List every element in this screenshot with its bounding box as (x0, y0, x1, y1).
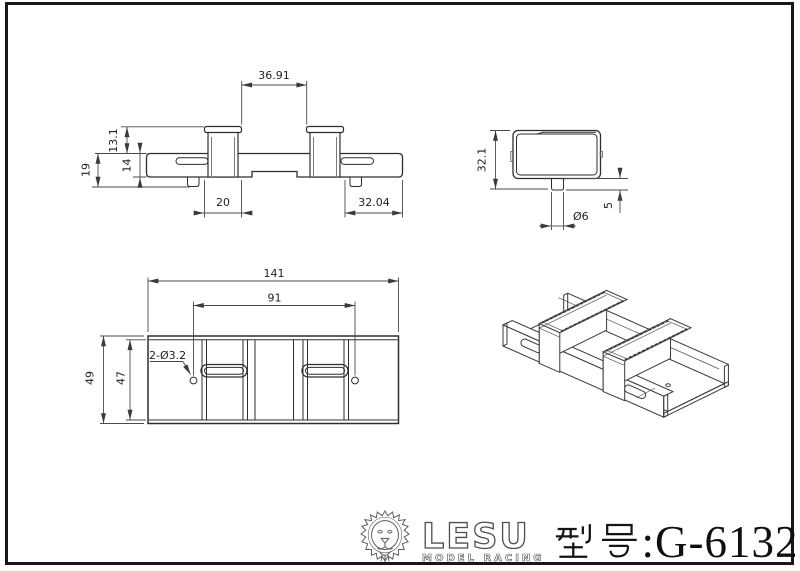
front-right-slot (341, 158, 374, 165)
side-extension-lines (490, 131, 628, 231)
front-left-block (208, 132, 238, 178)
dim-text-right-span: 32.04 (358, 196, 390, 209)
side-right-notch (600, 152, 602, 158)
dim-text-total-length: 141 (264, 267, 285, 280)
dim-text-rail-height: 14 (121, 159, 134, 173)
isometric-view (503, 290, 728, 417)
drawing-sheet: 36.91 13.1 14 19 20 32.04 32.1 5 (0, 0, 800, 571)
side-outline (513, 131, 601, 179)
top-right-slot-outer (302, 365, 348, 378)
top-left-hole (190, 377, 197, 384)
cad-drawing: 36.91 13.1 14 19 20 32.04 32.1 5 (0, 0, 800, 571)
dim-text-total-height: 19 (80, 163, 93, 177)
side-inner-outline (517, 134, 598, 175)
brand-wordmark: LESU (422, 522, 530, 552)
dim-text-block-height: 13.1 (107, 128, 120, 153)
front-rail-outline (147, 154, 403, 178)
holes-leader (183, 362, 191, 375)
front-left-slot (176, 158, 208, 165)
top-wall-lines (149, 340, 398, 420)
title-block: LESU MODEL RACING :G-6132 (360, 506, 799, 564)
iso-far-wall-right-end (724, 364, 728, 387)
side-left-notch (511, 152, 514, 162)
dim-text-inner-width: 47 (115, 371, 128, 385)
front-left-block-cap (205, 127, 242, 133)
top-left-slot-inner (205, 367, 244, 374)
side-bottom-tab (552, 179, 564, 191)
front-right-block-cap (307, 127, 344, 133)
model-number-row: :G-6132 (555, 520, 799, 564)
dim-text-tab-length: 5 (602, 202, 615, 209)
front-view: 36.91 13.1 14 19 20 32.04 (80, 69, 403, 218)
top-extension-lines (100, 278, 399, 424)
dim-text-top-span: 36.91 (258, 69, 290, 82)
dim-text-holes: 2-Ø3.2 (149, 349, 186, 362)
top-right-hole (352, 377, 359, 384)
top-right-slot-inner (306, 367, 345, 374)
dim-text-hole-span: 91 (268, 292, 282, 305)
top-view: 141 91 2-Ø3.2 49 47 (84, 267, 399, 424)
dim-text-outer-width: 49 (84, 371, 97, 385)
lion-head-icon (360, 508, 410, 564)
front-left-foot (188, 177, 200, 187)
front-extension-lines (92, 81, 403, 218)
brand-box: LESU MODEL RACING (422, 522, 545, 564)
top-band-lines (202, 340, 349, 420)
top-left-slot-outer (201, 365, 247, 378)
dim-text-side-height: 32.1 (476, 148, 489, 173)
front-right-foot (350, 177, 362, 187)
model-number: :G-6132 (642, 520, 799, 564)
front-right-block (310, 132, 340, 178)
dim-text-block-width: 20 (216, 196, 230, 209)
model-label-cn (555, 522, 642, 562)
dim-text-tab-diameter: Ø6 (573, 210, 589, 223)
brand-subtitle: MODEL RACING (422, 553, 545, 564)
side-view: 32.1 5 Ø6 (476, 131, 629, 231)
